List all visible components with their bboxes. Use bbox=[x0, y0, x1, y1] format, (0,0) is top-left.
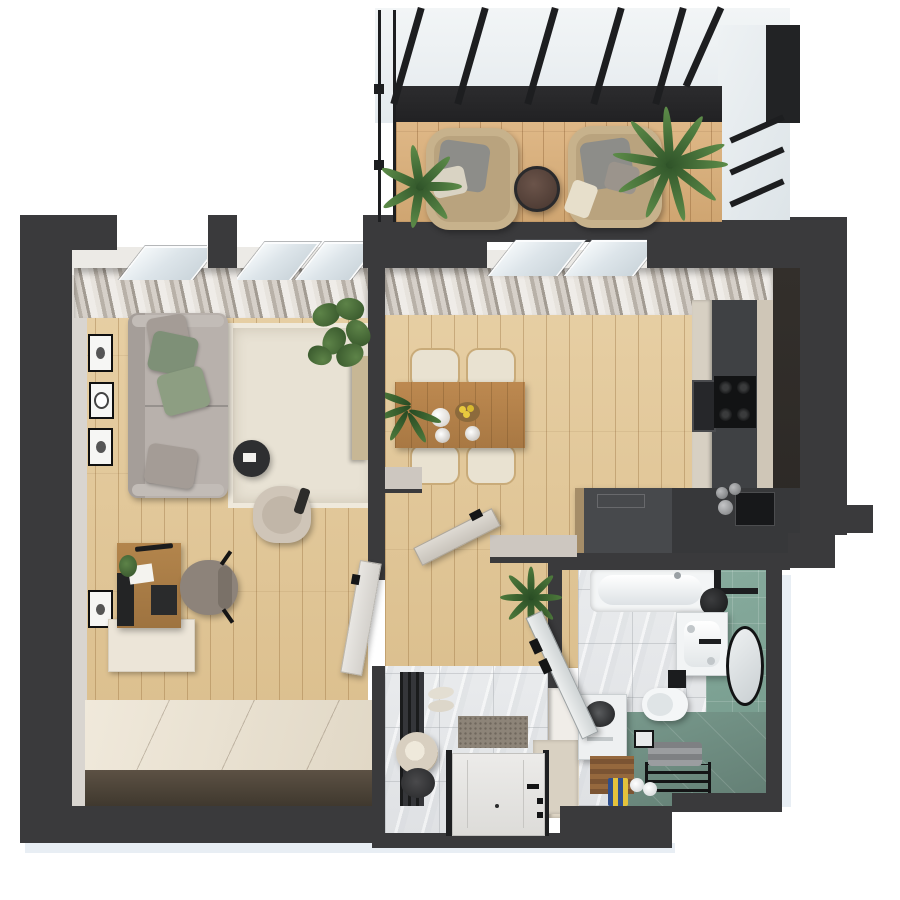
window-living-1 bbox=[117, 244, 207, 280]
entrance-door bbox=[452, 753, 545, 836]
window-living-2 bbox=[237, 240, 363, 280]
toilet bbox=[642, 688, 688, 721]
cup-right bbox=[465, 426, 480, 441]
sink-faucet bbox=[699, 639, 721, 644]
wall-bathroom-right bbox=[766, 568, 782, 808]
lounge-armchair bbox=[253, 486, 311, 543]
armchair-throw bbox=[293, 487, 311, 515]
table-plant bbox=[391, 392, 425, 434]
monstera-plant bbox=[306, 296, 376, 374]
kitchen-island bbox=[575, 488, 672, 556]
desk bbox=[117, 543, 181, 628]
desk-lamp bbox=[135, 543, 173, 552]
palm-plant-left bbox=[384, 152, 454, 224]
canister-1 bbox=[716, 487, 728, 499]
towel-roll-2 bbox=[643, 782, 657, 796]
wall-right bbox=[800, 217, 847, 535]
wall-left bbox=[20, 215, 72, 843]
office-chair-back bbox=[218, 566, 232, 609]
wall-stub-dining-a bbox=[385, 467, 422, 493]
canister-2 bbox=[729, 483, 741, 495]
desk-plant bbox=[119, 555, 137, 577]
palm-plant-right bbox=[606, 104, 736, 226]
door-mat bbox=[458, 716, 528, 748]
bathtub bbox=[590, 568, 718, 612]
wall-bathroom-top bbox=[548, 553, 790, 570]
wall-bottom-left bbox=[20, 806, 372, 843]
floor-plan-scene bbox=[0, 0, 900, 900]
ambient-shadow-right bbox=[782, 575, 791, 807]
cup-left bbox=[435, 428, 450, 443]
built-in-oven bbox=[692, 380, 716, 432]
wall-bottom-bath-right bbox=[672, 793, 782, 812]
sofa-backrest bbox=[128, 313, 145, 498]
round-mirror bbox=[726, 626, 764, 706]
wall-art-frame-3 bbox=[88, 428, 113, 466]
window-dining bbox=[487, 238, 647, 276]
wall-right-step bbox=[788, 533, 835, 568]
lemon-bowl bbox=[455, 402, 480, 422]
pergola-corner-block bbox=[766, 25, 800, 123]
wall-hall-left-lower bbox=[372, 666, 385, 838]
toiletry-bottles bbox=[608, 778, 628, 806]
toilet-paper-holder bbox=[634, 730, 654, 748]
pergola-left-rail-1 bbox=[378, 10, 381, 222]
wall-right-protrusion bbox=[847, 505, 873, 533]
towels bbox=[648, 742, 702, 766]
podium-platform-top bbox=[85, 700, 372, 770]
coffee-table-card bbox=[243, 453, 256, 462]
office-chair bbox=[180, 560, 238, 615]
wall-stub-dining-b bbox=[490, 535, 577, 563]
vanity-sink bbox=[676, 612, 728, 676]
coffee-table bbox=[233, 440, 270, 477]
gas-cooktop bbox=[714, 376, 756, 428]
wall-bottom-bath bbox=[560, 806, 672, 845]
hat-dark bbox=[401, 768, 435, 798]
sofa-pillow-gray-2 bbox=[143, 442, 199, 489]
wall-art-frame-1 bbox=[88, 334, 113, 372]
podium-platform-front bbox=[85, 770, 372, 808]
canister-3 bbox=[718, 500, 733, 515]
dining-table bbox=[395, 382, 525, 448]
wall-window-pillar bbox=[208, 215, 237, 268]
round-side-table bbox=[514, 166, 560, 212]
flush-plate bbox=[668, 670, 686, 688]
desk-keyboard bbox=[151, 585, 177, 615]
kitchen-sink bbox=[735, 492, 775, 526]
pergola-joint-1 bbox=[374, 84, 384, 94]
entrance-door-handle bbox=[527, 784, 539, 789]
towel-roll-1 bbox=[630, 778, 644, 792]
dining-chair-bottom-right bbox=[466, 444, 516, 485]
kitchen-counter-strip bbox=[757, 300, 773, 520]
wall-art-frame-2 bbox=[89, 382, 114, 419]
